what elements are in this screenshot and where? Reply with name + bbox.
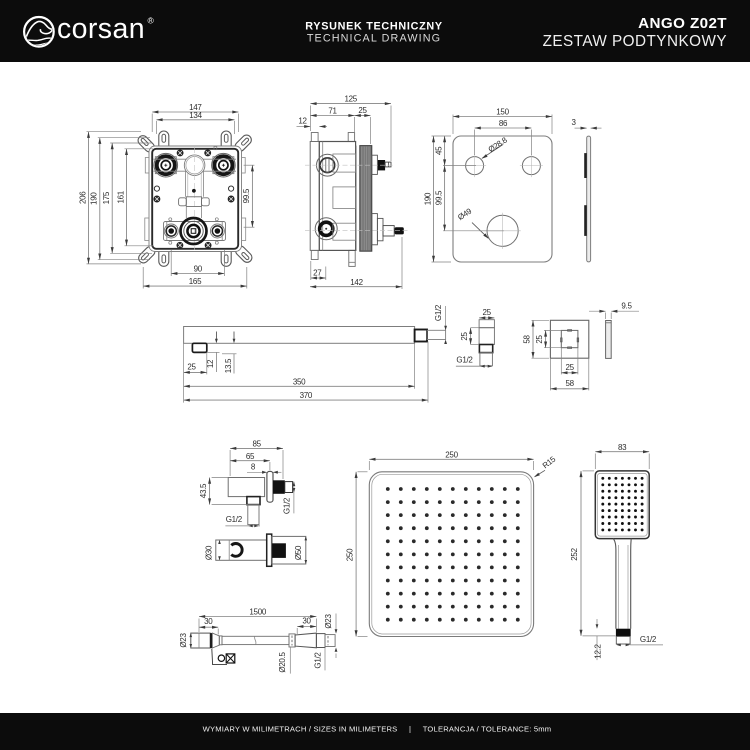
svg-text:25: 25 [565, 363, 574, 372]
svg-text:142: 142 [350, 278, 363, 287]
svg-text:G1/2: G1/2 [456, 356, 473, 365]
svg-text:25: 25 [482, 308, 491, 317]
svg-text:250: 250 [346, 548, 355, 561]
svg-text:250: 250 [445, 450, 458, 459]
svg-text:90: 90 [194, 265, 203, 274]
svg-text:25: 25 [535, 335, 544, 344]
svg-text:1500: 1500 [249, 608, 266, 617]
svg-text:43.5: 43.5 [199, 483, 208, 498]
svg-text:corsan: corsan [57, 13, 145, 45]
svg-text:161: 161 [116, 190, 125, 203]
svg-text:85: 85 [252, 440, 261, 449]
svg-text:RYSUNEK TECHNICZNY: RYSUNEK TECHNICZNY [305, 21, 443, 33]
svg-text:9.5: 9.5 [621, 301, 632, 310]
svg-text:83: 83 [618, 443, 627, 452]
svg-text:65: 65 [246, 452, 255, 461]
svg-text:206: 206 [78, 191, 87, 204]
svg-text:58: 58 [523, 335, 532, 344]
svg-text:370: 370 [300, 391, 313, 400]
svg-text:58: 58 [565, 379, 574, 388]
svg-text:13.5: 13.5 [224, 358, 233, 373]
svg-text:®: ® [148, 16, 155, 26]
svg-text:Ø23: Ø23 [324, 614, 333, 629]
svg-text:TECHNICAL DRAWING: TECHNICAL DRAWING [307, 33, 441, 45]
svg-text:190: 190 [423, 192, 432, 205]
svg-text:12: 12 [206, 359, 215, 368]
svg-text:71: 71 [328, 107, 337, 116]
svg-text:190: 190 [90, 192, 99, 205]
svg-text:165: 165 [189, 277, 202, 286]
svg-text:25: 25 [460, 332, 469, 341]
svg-text:99.5: 99.5 [242, 188, 251, 203]
svg-text:Ø50: Ø50 [294, 545, 303, 560]
svg-text:25: 25 [358, 106, 367, 115]
svg-text:G1/2: G1/2 [313, 652, 322, 669]
svg-text:12.2: 12.2 [594, 643, 603, 658]
svg-text:Ø30: Ø30 [205, 545, 214, 560]
svg-text:125: 125 [344, 95, 357, 104]
svg-text:G1/2: G1/2 [282, 497, 291, 514]
svg-text:G1/2: G1/2 [434, 304, 443, 321]
svg-text:WYMIARY W MILIMETRACH / SIZES: WYMIARY W MILIMETRACH / SIZES IN MILIMET… [203, 725, 552, 734]
svg-text:Ø23: Ø23 [179, 633, 188, 648]
svg-text:86: 86 [499, 119, 508, 128]
svg-text:134: 134 [189, 111, 202, 120]
svg-text:175: 175 [102, 191, 111, 204]
svg-text:30: 30 [204, 617, 213, 626]
svg-text:ANGO Z02T: ANGO Z02T [638, 15, 727, 32]
svg-text:ZESTAW PODTYNKOWY: ZESTAW PODTYNKOWY [543, 33, 727, 50]
svg-text:25: 25 [187, 363, 196, 372]
svg-text:G1/2: G1/2 [640, 635, 657, 644]
svg-text:G1/2: G1/2 [226, 515, 243, 524]
svg-text:Ø20.5: Ø20.5 [278, 652, 287, 673]
svg-text:12: 12 [298, 117, 307, 126]
svg-text:99.5: 99.5 [434, 190, 443, 205]
svg-text:350: 350 [293, 377, 306, 386]
svg-text:30: 30 [302, 617, 311, 626]
svg-text:45: 45 [434, 146, 443, 155]
svg-text:252: 252 [570, 547, 579, 560]
svg-text:150: 150 [496, 108, 509, 117]
svg-text:27: 27 [313, 269, 322, 278]
